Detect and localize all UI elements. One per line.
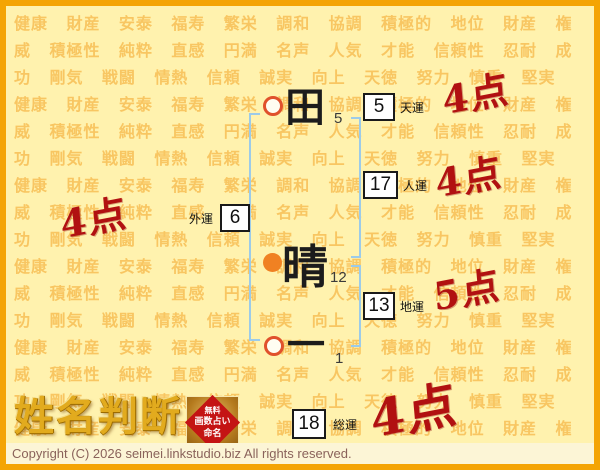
- gaiun-label: 外運: [189, 213, 213, 225]
- chiun-label: 地運: [400, 301, 424, 313]
- given-name-dot-marker: [263, 253, 282, 272]
- souun-value-box: 18: [292, 409, 326, 439]
- name-character-3: 一: [287, 327, 325, 365]
- stroke-count-2: 12: [330, 270, 347, 285]
- copyright-bar: Copyright (C) 2026 seimei.linkstudio.biz…: [6, 443, 594, 464]
- tenun-value-box: 5: [363, 93, 395, 121]
- stamp-badge[interactable]: 無料 画数占い 命名: [186, 396, 239, 449]
- given-name-ring-marker: [264, 336, 284, 356]
- souun-label: 総運: [333, 419, 357, 431]
- name-character-1: 田: [285, 88, 325, 128]
- stamp-line-3: 命名: [203, 428, 221, 439]
- site-logo[interactable]: 姓名判断: [14, 395, 182, 439]
- jinun-value-box: 17: [363, 171, 398, 199]
- stamp-line-2: 画数占い: [194, 416, 230, 427]
- stroke-count-1: 5: [334, 111, 342, 126]
- stamp-line-1: 無料: [205, 406, 221, 416]
- gaiun-value-box: 6: [220, 204, 250, 232]
- tenun-label: 天運: [400, 102, 424, 114]
- stroke-count-3: 1: [335, 351, 343, 366]
- seimei-handan-page: 健康 財産 安泰 福寿 繁栄 調和 協調 積極的 地位 財産 権威 積極性 純粋…: [0, 0, 600, 470]
- name-character-2: 晴: [282, 244, 328, 290]
- gaiun-bracket: [249, 113, 260, 341]
- surname-ring-marker: [263, 96, 283, 116]
- stamp-text: 無料 画数占い 命名: [186, 396, 239, 449]
- chiun-value-box: 13: [363, 292, 395, 320]
- copyright-text: Copyright (C) 2026 seimei.linkstudio.biz…: [12, 446, 352, 461]
- chiun-bracket: [351, 265, 361, 347]
- jinun-label: 人運: [403, 180, 427, 192]
- jinun-bracket: [351, 117, 361, 258]
